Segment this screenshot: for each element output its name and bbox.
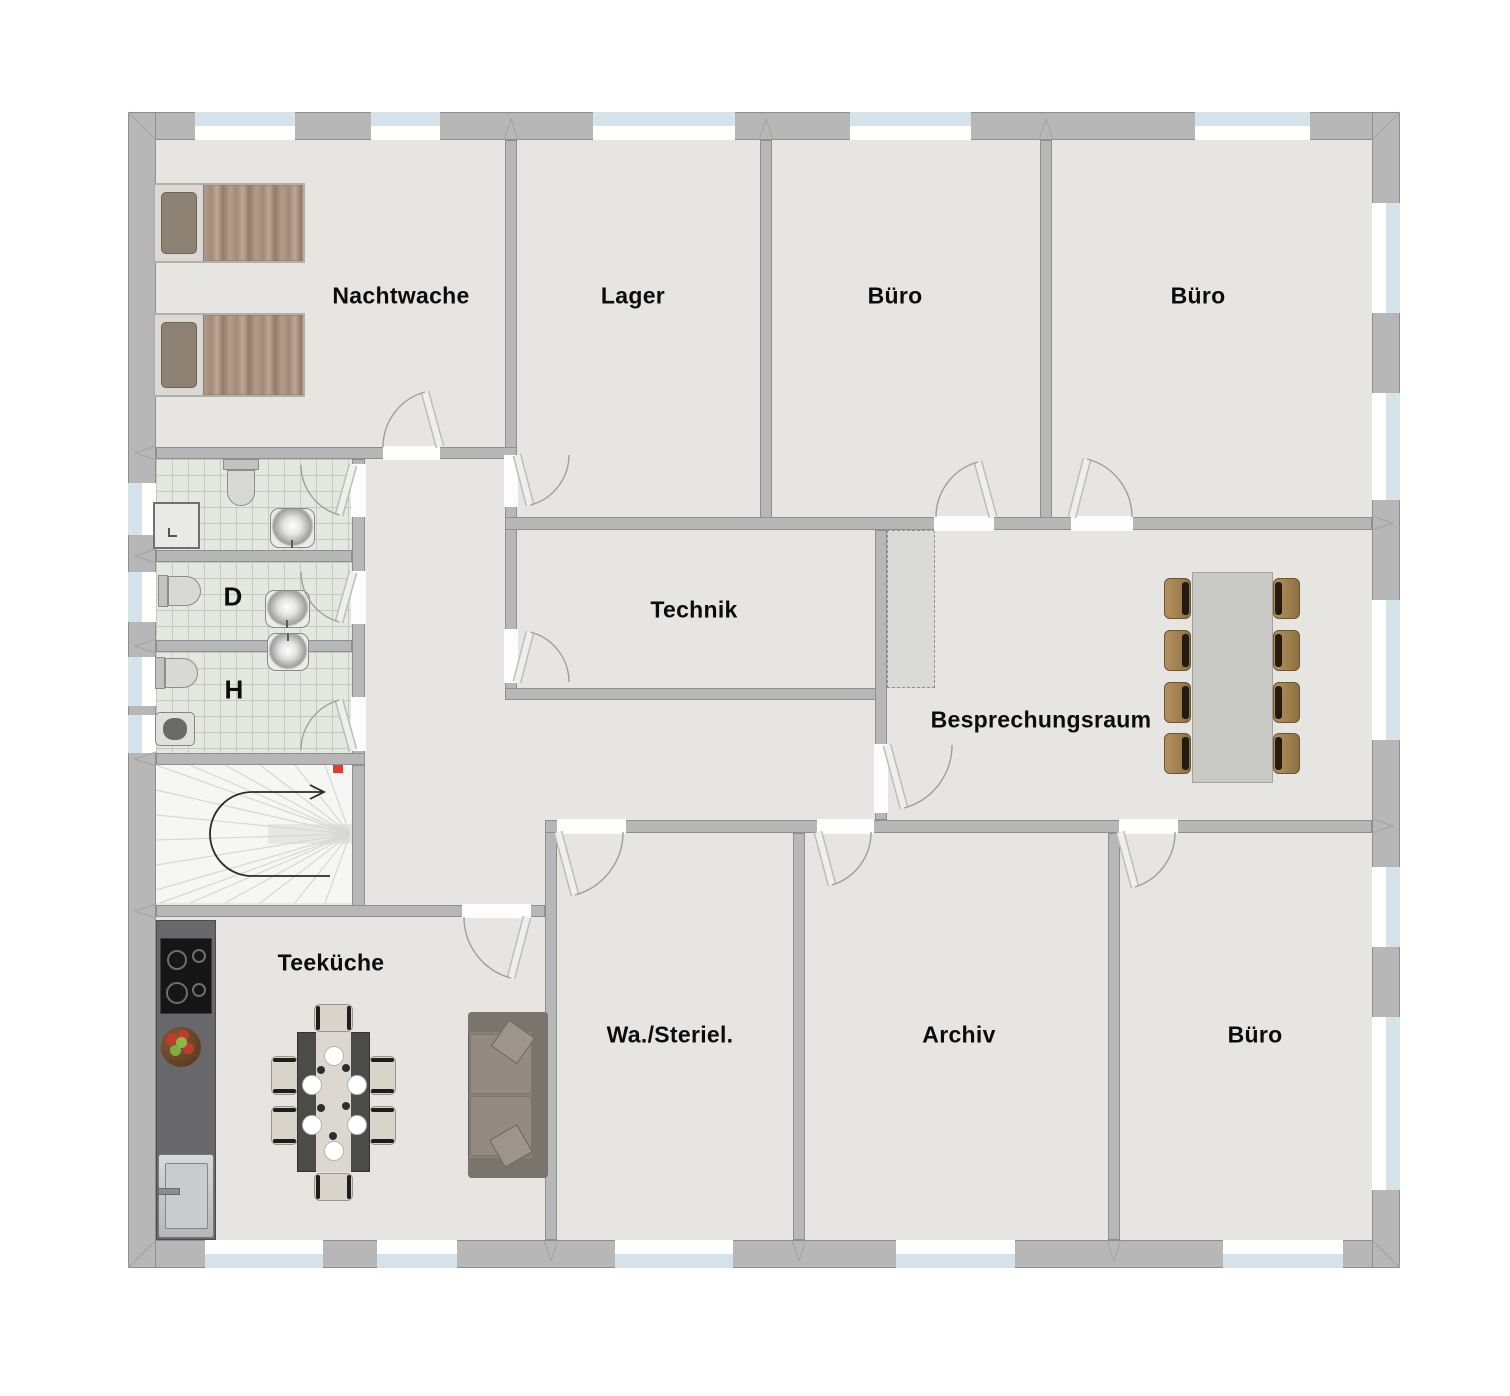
door-opening	[557, 819, 626, 834]
stove-icon	[160, 938, 212, 1014]
conference-chair-icon	[1164, 578, 1191, 619]
room-label-archiv: Archiv	[922, 1022, 995, 1049]
room-label-lager: Lager	[601, 283, 665, 310]
plate-icon	[347, 1075, 367, 1095]
wall	[156, 447, 517, 459]
conference-chair-icon	[1164, 682, 1191, 723]
stair-landing	[268, 824, 352, 844]
cup-icon	[317, 1066, 325, 1074]
door-opening	[383, 446, 440, 460]
plate-icon	[347, 1115, 367, 1135]
door-opening	[351, 571, 366, 624]
window	[1372, 867, 1386, 947]
faucet-icon	[158, 1188, 180, 1195]
room-label-buero-top-mid: Büro	[868, 283, 923, 310]
wall	[1040, 140, 1052, 530]
wall	[505, 140, 517, 700]
chair-icon	[271, 1106, 298, 1145]
room-label-nachtwache: Nachtwache	[332, 283, 469, 310]
window	[128, 715, 142, 753]
toilet-icon	[165, 658, 198, 688]
window	[377, 1240, 457, 1254]
stove-burner-icon	[192, 983, 206, 997]
window	[1386, 393, 1400, 500]
room-label-besprechungsraum: Besprechungsraum	[931, 707, 1152, 734]
chair-icon	[369, 1056, 396, 1095]
wall	[156, 550, 352, 562]
plate-icon	[324, 1141, 344, 1161]
room-label-wa-steriel: Wa./Steriel.	[607, 1022, 734, 1049]
plate-icon	[324, 1046, 344, 1066]
conference-table-icon	[1192, 572, 1273, 783]
window	[896, 1254, 1015, 1268]
conference-chair-icon	[1273, 682, 1300, 723]
window	[1223, 1254, 1343, 1268]
window	[195, 112, 295, 126]
window	[1372, 393, 1386, 500]
window	[128, 483, 142, 535]
door-opening	[874, 744, 888, 813]
wall	[545, 820, 1372, 833]
wall	[156, 640, 352, 652]
window	[371, 126, 440, 140]
window	[205, 1240, 323, 1254]
conference-chair-icon	[1273, 733, 1300, 774]
cup-icon	[342, 1102, 350, 1110]
bed-pillow-icon	[161, 322, 197, 388]
window	[1372, 600, 1386, 740]
window	[142, 572, 156, 622]
door-opening	[934, 516, 994, 531]
window	[1386, 600, 1400, 740]
window	[128, 572, 142, 622]
wall	[505, 688, 887, 700]
window	[205, 1254, 323, 1268]
door-opening	[1071, 516, 1133, 531]
door-opening	[351, 697, 366, 751]
room-label-teekueche: Teeküche	[278, 950, 385, 977]
wall	[156, 753, 365, 765]
window	[142, 715, 156, 753]
door-opening	[351, 464, 366, 517]
floor-plan: Nachtwache Lager Büro Büro Technik Bespr…	[0, 0, 1510, 1396]
stove-burner-icon	[167, 950, 187, 970]
window	[850, 126, 971, 140]
conference-chair-icon	[1273, 578, 1300, 619]
bed-pillow-icon	[161, 192, 197, 254]
toilet-icon	[227, 470, 255, 506]
door-opening	[504, 629, 518, 683]
stove-burner-icon	[192, 949, 206, 963]
fruit-icon	[176, 1037, 187, 1048]
toilet-icon	[155, 657, 165, 689]
window	[142, 657, 156, 706]
chair-icon	[314, 1004, 353, 1032]
room-label-technik: Technik	[650, 597, 737, 624]
window	[1386, 203, 1400, 313]
plate-icon	[302, 1075, 322, 1095]
plate-icon	[302, 1115, 322, 1135]
window	[1386, 1017, 1400, 1190]
window	[128, 657, 142, 706]
window	[1372, 203, 1386, 313]
shaft	[887, 530, 935, 688]
window	[195, 126, 295, 140]
washbasin-icon	[270, 508, 315, 548]
kitchen-sink-basin-icon	[165, 1163, 208, 1229]
window	[1372, 1017, 1386, 1190]
window	[593, 112, 735, 126]
conference-chair-icon	[1273, 630, 1300, 671]
chair-icon	[271, 1056, 298, 1095]
room-label-wc-h: H	[224, 675, 243, 706]
room-label-wc-d: D	[223, 582, 242, 613]
window	[1195, 112, 1310, 126]
window	[1195, 126, 1310, 140]
room-label-buero-bottom-right: Büro	[1228, 1022, 1283, 1049]
door-opening	[462, 904, 531, 918]
urinal-bowl-icon	[163, 718, 187, 740]
toilet-icon	[223, 459, 259, 470]
red-marker	[333, 765, 343, 773]
window	[615, 1254, 733, 1268]
stove-burner-icon	[166, 982, 188, 1004]
chair-icon	[369, 1106, 396, 1145]
wall	[1108, 833, 1120, 1240]
conference-chair-icon	[1164, 630, 1191, 671]
window	[1386, 867, 1400, 947]
door-opening	[504, 455, 518, 507]
washbasin-icon	[265, 590, 310, 628]
sofa-armrest	[468, 1158, 532, 1178]
window	[371, 112, 440, 126]
window	[377, 1254, 457, 1268]
window	[850, 112, 971, 126]
toilet-icon	[168, 576, 201, 606]
fruit-bowl-icon	[161, 1027, 201, 1067]
cup-icon	[317, 1104, 325, 1112]
toilet-icon	[158, 575, 168, 607]
shower-icon	[153, 502, 200, 549]
conference-chair-icon	[1164, 733, 1191, 774]
cup-icon	[342, 1064, 350, 1072]
door-opening	[1119, 819, 1178, 834]
door-opening	[817, 819, 874, 834]
wall	[352, 765, 365, 917]
shower-drain-icon	[168, 528, 177, 537]
cup-icon	[329, 1132, 337, 1140]
wall	[760, 140, 772, 530]
washbasin-icon	[267, 633, 309, 671]
chair-icon	[314, 1173, 353, 1201]
window	[615, 1240, 733, 1254]
window	[593, 126, 735, 140]
window	[1223, 1240, 1343, 1254]
wall	[793, 833, 805, 1240]
bed-blanket-icon	[203, 315, 303, 395]
window	[896, 1240, 1015, 1254]
bed-blanket-icon	[203, 185, 303, 261]
room-label-buero-top-right: Büro	[1171, 283, 1226, 310]
